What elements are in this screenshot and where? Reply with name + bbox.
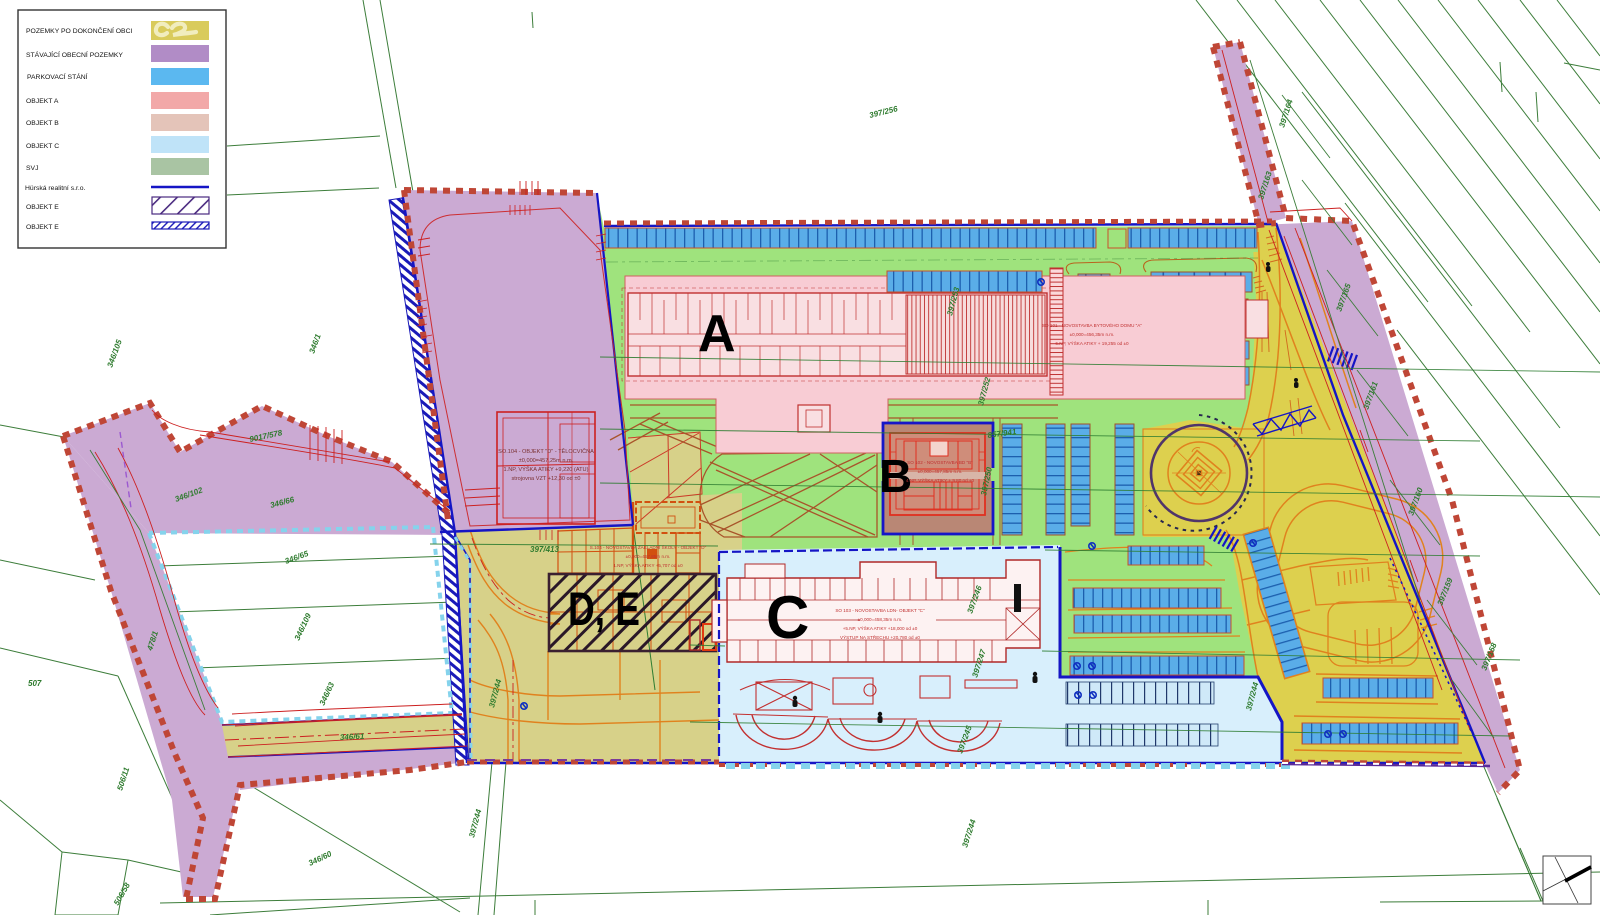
svg-text:A: A — [698, 305, 736, 363]
svg-text:1.NP, VÝŠKA ATIKY +5,707 od ±0: 1.NP, VÝŠKA ATIKY +5,707 od ±0 — [613, 562, 683, 568]
svg-text:STÁVAJÍCÍ OBECNÍ POZEMKY: STÁVAJÍCÍ OBECNÍ POZEMKY — [26, 50, 123, 59]
svg-text:D, E: D, E — [568, 582, 640, 635]
svg-text:±0,000=458,35m n.m.: ±0,000=458,35m n.m. — [858, 617, 903, 622]
svg-text:OBJEKT A: OBJEKT A — [26, 98, 59, 105]
svg-text:OBJEKT E: OBJEKT E — [26, 224, 59, 231]
svg-text:346/61: 346/61 — [340, 732, 365, 742]
svg-text:±0,000=457,85m n.m.: ±0,000=457,85m n.m. — [918, 469, 963, 474]
svg-text:±0,000=456,35m n.m.: ±0,000=456,35m n.m. — [1070, 332, 1115, 337]
svg-text:397/413: 397/413 — [530, 545, 559, 554]
svg-text:S.104 - NOVOSTAVBA ZÁKLADNÍ ŠK: S.104 - NOVOSTAVBA ZÁKLADNÍ ŠKOLY - OBJE… — [590, 544, 707, 550]
svg-text:1.NP, VÝŠKA ATIKY +9,220 (ATU): 1.NP, VÝŠKA ATIKY +9,220 (ATU) — [504, 466, 589, 473]
svg-text:4.NP, VÝŠKA ATIKY + 9,80 od ±0: 4.NP, VÝŠKA ATIKY + 9,80 od ±0 — [906, 477, 974, 483]
svg-text:SO 103 - NOVOSTAVBA LDN- OBJEK: SO 103 - NOVOSTAVBA LDN- OBJEKT "C" — [835, 608, 925, 613]
svg-text:±0,000=457,85m n.m.: ±0,000=457,85m n.m. — [626, 554, 671, 559]
svg-text:B: B — [879, 450, 912, 502]
svg-text:C: C — [766, 584, 809, 651]
svg-text:507: 507 — [28, 679, 42, 688]
svg-text:SVJ: SVJ — [26, 165, 38, 172]
svg-text:6.NP, VÝŠKA ATIKY + 19,255 od: 6.NP, VÝŠKA ATIKY + 19,255 od ±0 — [1055, 340, 1129, 346]
svg-text:SO.104 - OBJEKT "D" - TĚLOCVIČ: SO.104 - OBJEKT "D" - TĚLOCVIČNA — [498, 447, 594, 455]
svg-text:SO 101 - NOVOSTAVBA BYTOVÉHO D: SO 101 - NOVOSTAVBA BYTOVÉHO DOMU "A" — [1042, 322, 1142, 328]
svg-text:OBJEKT B: OBJEKT B — [26, 120, 59, 127]
svg-text:PARKOVACÍ STÁNÍ: PARKOVACÍ STÁNÍ — [27, 72, 88, 81]
svg-text:+5.NP, VÝŠKA ATIKY +18,000 od: +5.NP, VÝŠKA ATIKY +18,000 od ±0 — [843, 625, 918, 631]
svg-text:SO 102 - NOVOSTAVBA BD "B": SO 102 - NOVOSTAVBA BD "B" — [907, 460, 973, 465]
svg-text:±0,000=457,25m n.m.: ±0,000=457,25m n.m. — [519, 458, 574, 464]
svg-text:OBJEKT E: OBJEKT E — [26, 204, 59, 211]
svg-text:strojovna VZT +12,30 od ±0: strojovna VZT +12,30 od ±0 — [511, 476, 580, 482]
svg-text:OBJEKT C: OBJEKT C — [26, 143, 59, 150]
svg-text:POZEMKY PO DOKONČENÍ OBCI: POZEMKY PO DOKONČENÍ OBCI — [26, 26, 132, 35]
svg-text:Hürská realitní s.r.o.: Hürská realitní s.r.o. — [25, 185, 86, 192]
svg-text:VÝSTUP NA STŘECHU +20,780 od ±: VÝSTUP NA STŘECHU +20,780 od ±0 — [840, 633, 920, 640]
